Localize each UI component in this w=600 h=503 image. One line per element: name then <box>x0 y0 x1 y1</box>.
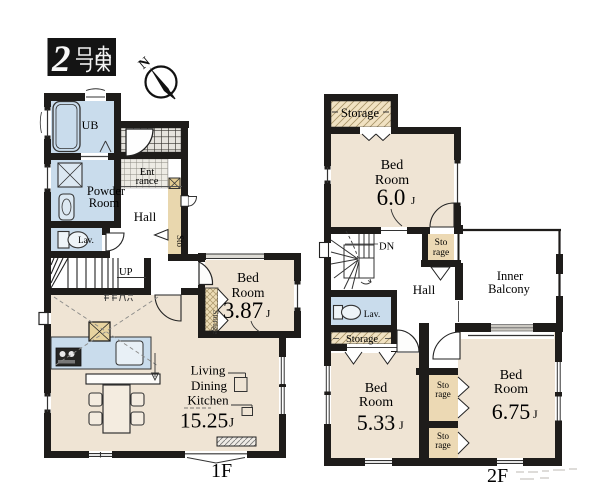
svg-text:Hall: Hall <box>413 282 436 297</box>
svg-text:6.75: 6.75 <box>492 399 531 424</box>
svg-text:Sto: Sto <box>175 235 185 248</box>
svg-text:J: J <box>533 407 538 421</box>
svg-text:Bed: Bed <box>381 158 404 173</box>
svg-text:Hall: Hall <box>134 209 157 224</box>
svg-text:6.0: 6.0 <box>377 185 406 210</box>
svg-text:J: J <box>411 195 416 207</box>
svg-text:Storage: Storage <box>211 310 220 335</box>
svg-text:Inner: Inner <box>497 269 524 283</box>
svg-text:Storage: Storage <box>341 106 380 120</box>
svg-text:Sto: Sto <box>435 238 448 248</box>
svg-text:2: 2 <box>51 39 71 80</box>
svg-text:5.33: 5.33 <box>357 410 396 435</box>
svg-text:Room: Room <box>359 395 393 410</box>
svg-text:2F: 2F <box>487 465 508 487</box>
svg-text:Bed: Bed <box>237 270 259 285</box>
svg-text:J: J <box>229 415 234 430</box>
svg-text:UP: UP <box>119 267 133 278</box>
svg-text:rage: rage <box>433 248 449 258</box>
svg-text:Bed: Bed <box>500 368 523 383</box>
svg-text:3.87: 3.87 <box>223 298 263 323</box>
svg-text:15.25: 15.25 <box>180 409 228 433</box>
svg-text:Lav.: Lav. <box>364 310 381 320</box>
svg-text:rage: rage <box>435 440 451 450</box>
svg-text:Bed: Bed <box>365 381 388 396</box>
svg-text:UB: UB <box>82 118 99 132</box>
svg-text:J: J <box>399 418 404 432</box>
svg-text:Balcony: Balcony <box>488 282 530 296</box>
svg-text:Room: Room <box>89 196 120 210</box>
svg-text:DN: DN <box>379 242 395 253</box>
svg-text:Living: Living <box>191 363 226 378</box>
svg-text:J: J <box>266 308 271 320</box>
svg-text:rance: rance <box>136 176 159 187</box>
svg-text:Kitchen: Kitchen <box>187 393 229 408</box>
svg-text:1F: 1F <box>211 460 232 482</box>
svg-text:Lav.: Lav. <box>78 235 94 245</box>
svg-text:Storage: Storage <box>346 334 378 345</box>
svg-text:Room: Room <box>494 382 528 397</box>
svg-text:Dining: Dining <box>191 378 228 393</box>
svg-text:rage: rage <box>435 389 451 399</box>
